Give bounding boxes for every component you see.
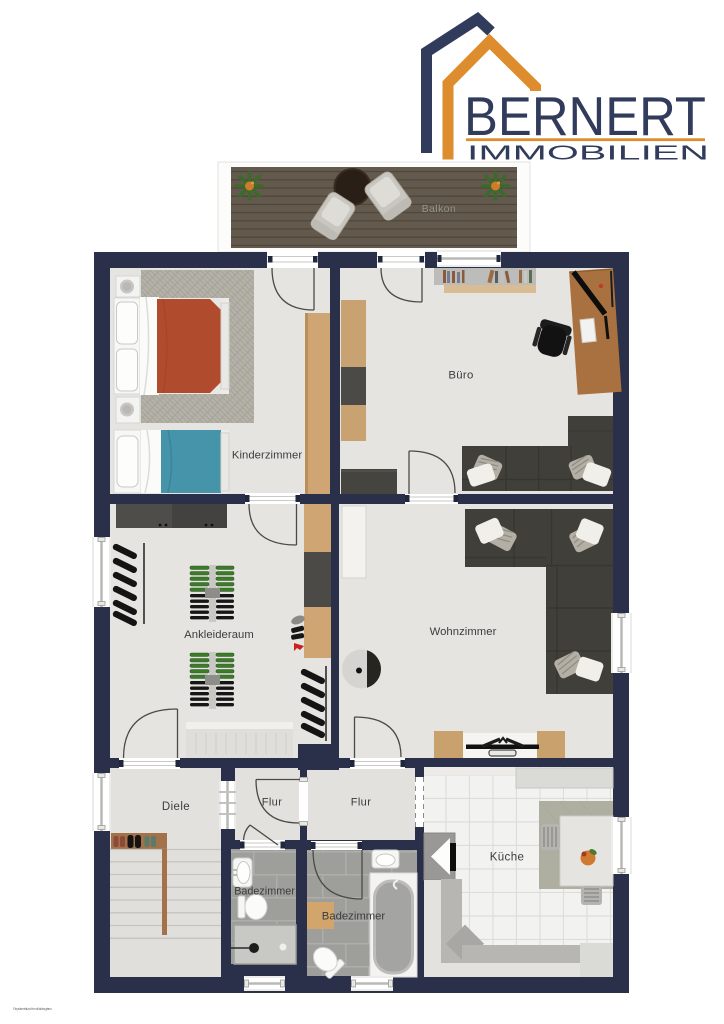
svg-text:Badezimmer: Badezimmer [234, 886, 295, 898]
svg-text:Ankleideraum: Ankleideraum [184, 629, 254, 641]
svg-text:Diele: Diele [162, 801, 190, 813]
svg-text:Badezimmer: Badezimmer [322, 911, 386, 923]
svg-text:BERNERT: BERNERT [464, 85, 706, 147]
svg-text:Balkon: Balkon [422, 203, 457, 215]
svg-text:Küche: Küche [490, 852, 525, 864]
svg-text:Flur: Flur [262, 797, 283, 809]
svg-text:Büro: Büro [448, 370, 473, 382]
svg-text:IMMOBILIEN: IMMOBILIEN [467, 142, 709, 165]
svg-text:Kinderzimmer: Kinderzimmer [232, 450, 302, 462]
svg-text:Wohnzimmer: Wohnzimmer [430, 626, 497, 638]
svg-text:Repräsentativ, nicht maßstabsg: Repräsentativ, nicht maßstabsgetreu [13, 1006, 52, 1011]
svg-text:Flur: Flur [351, 797, 372, 809]
